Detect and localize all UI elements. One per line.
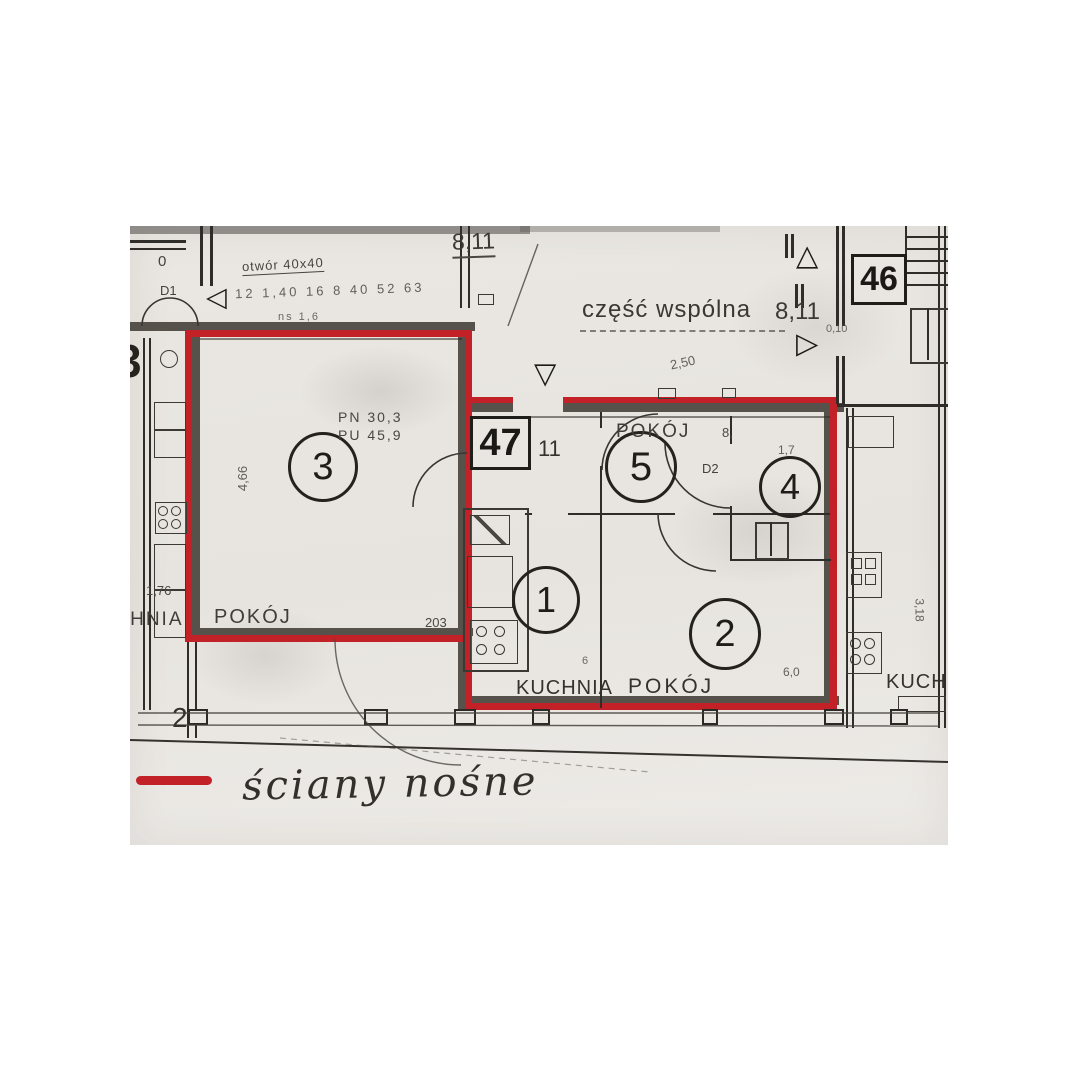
room3-width-dim: 4,66 bbox=[236, 466, 249, 491]
room3-stat-pn: PN 30,3 bbox=[338, 410, 403, 424]
room5-label: POKÓJ bbox=[616, 422, 690, 441]
left-room-zero: 0 bbox=[158, 254, 166, 269]
left-balcony-dim: 2 bbox=[172, 704, 188, 732]
hall-dim: 11 bbox=[538, 438, 561, 460]
corridor-label: część wspólna bbox=[582, 298, 751, 322]
room1-circle: 1 bbox=[512, 566, 580, 634]
room2-circle: 2 bbox=[689, 598, 761, 670]
room3-number: 3 bbox=[312, 446, 333, 489]
room4-dim: 1,7 bbox=[778, 444, 795, 456]
room2-number: 2 bbox=[714, 613, 735, 656]
room2-label: POKÓJ bbox=[628, 676, 714, 697]
door-arcs-svg bbox=[130, 226, 948, 845]
right-kitchen-label: KUCHNIA bbox=[886, 672, 948, 692]
room3-door-dim: 203 bbox=[425, 616, 447, 629]
room1-dim: 6 bbox=[582, 656, 588, 667]
triangle-up-icon: △ bbox=[796, 242, 818, 271]
legend-swatch bbox=[136, 776, 212, 785]
unit-47-label: 47 bbox=[479, 422, 521, 465]
unit-46-label: 46 bbox=[860, 260, 898, 299]
room1-number: 1 bbox=[536, 579, 556, 621]
corridor-area: 8,11 bbox=[775, 300, 820, 324]
legend-text: ściany nośne bbox=[242, 761, 539, 806]
corridor-dims-small: ns 1,6 bbox=[278, 312, 320, 323]
room3-label: POKÓJ bbox=[214, 607, 292, 627]
room5-number: 5 bbox=[630, 445, 652, 490]
triangle-down-icon: ▽ bbox=[534, 360, 556, 389]
unit-46-box: 46 bbox=[851, 254, 907, 305]
corridor-dim-wall: 0,10 bbox=[826, 324, 847, 335]
unit-47-box: 47 bbox=[470, 416, 531, 470]
corridor-label-underline bbox=[580, 330, 785, 332]
triangle-right-icon: ▷ bbox=[796, 330, 818, 359]
room4-circle: 4 bbox=[759, 456, 821, 518]
left-dim: 1,76 bbox=[146, 584, 171, 597]
room2-dim: 6,0 bbox=[783, 666, 800, 678]
screenshot-canvas: 3 1 2 5 4 47 46 część wspólna 8,11 otwór… bbox=[0, 0, 1080, 1080]
triangle-left-icon: ◁ bbox=[206, 284, 227, 311]
left-partial-number: 3 bbox=[130, 338, 142, 384]
right-dim-height: 3,18 bbox=[914, 598, 926, 621]
floor-plan-paper: 3 1 2 5 4 47 46 część wspólna 8,11 otwór… bbox=[130, 226, 948, 845]
room5-dim: 8, bbox=[722, 426, 733, 439]
room3-stat-pu: PU 45,9 bbox=[338, 428, 403, 442]
opening-area: 8,11 bbox=[452, 229, 496, 258]
door-d2-label: D2 bbox=[702, 462, 719, 475]
door-d1-label: D1 bbox=[160, 284, 177, 297]
room1-label: KUCHNIA bbox=[516, 678, 613, 698]
left-kitchen-label: KUCHNIA bbox=[130, 610, 184, 629]
room4-number: 4 bbox=[780, 466, 800, 508]
